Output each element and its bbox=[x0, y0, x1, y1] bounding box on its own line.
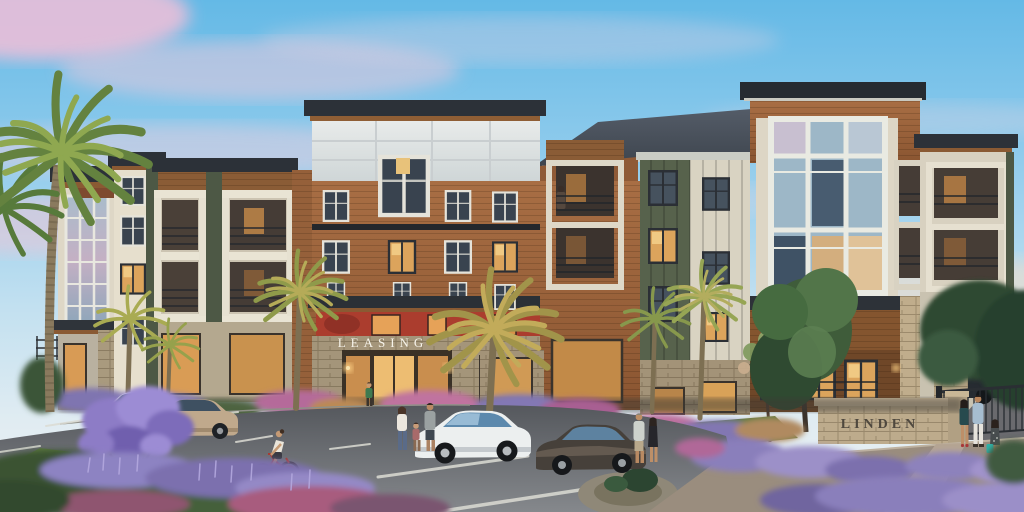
balcony-person bbox=[557, 186, 566, 209]
balcony-stack bbox=[546, 140, 624, 290]
scene-canvas: LEASING bbox=[0, 0, 1024, 512]
monument-sign: LINDEN bbox=[841, 417, 919, 432]
leasing-sign: LEASING bbox=[338, 335, 429, 350]
family-woman bbox=[397, 407, 407, 451]
